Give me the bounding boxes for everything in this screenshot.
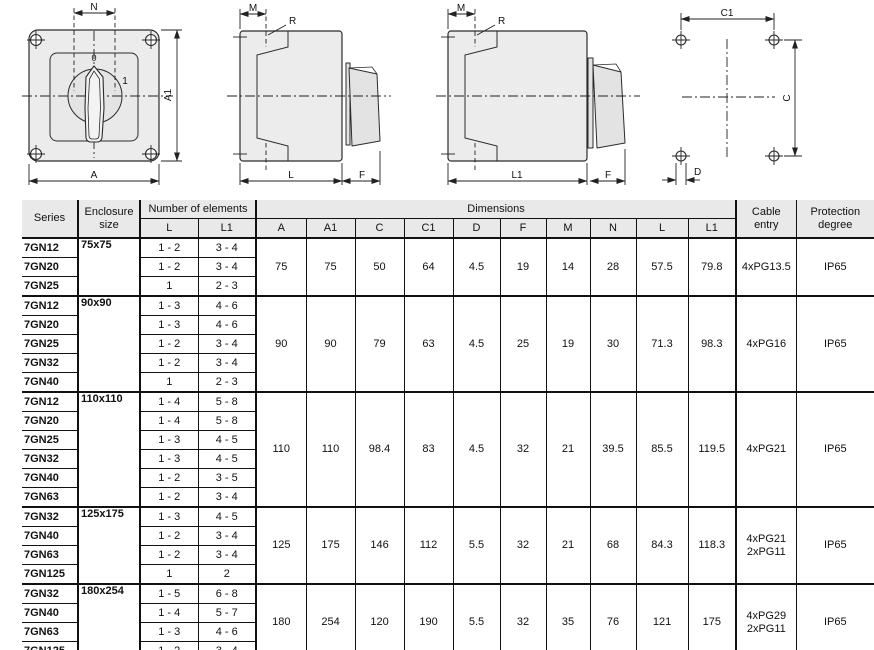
cable-entry-line: 4xPG16 <box>739 338 794 351</box>
elements-l1-cell: 3 - 4 <box>198 546 256 565</box>
protection-cell: IP65 <box>796 584 874 650</box>
series-cell: 7GN25 <box>22 335 78 354</box>
dim-label-c: C <box>782 94 793 101</box>
dimension-l1: L1 <box>448 163 587 185</box>
col-header-number-of-elements: Number of elements <box>140 200 256 219</box>
dim-value-cell: 25 <box>500 296 546 392</box>
col-header-enclosure-size: Enclosure size <box>78 200 140 238</box>
elements-l1-cell: 3 - 4 <box>198 488 256 508</box>
dim-value-cell: 146 <box>355 507 404 584</box>
dim-value-cell: 98.4 <box>355 392 404 507</box>
dim-value-cell: 30 <box>590 296 636 392</box>
table-row: 7GN12110x1101 - 45 - 811011098.4834.5322… <box>22 392 874 412</box>
dim-value-cell: 32 <box>500 507 546 584</box>
col-header-dimensions: Dimensions <box>256 200 736 219</box>
cable-entry-cell: 4xPG21 <box>736 392 796 507</box>
col-header-protection-degree: Protection degree <box>796 200 874 238</box>
dimension-a1: A1 <box>161 30 182 161</box>
elements-l-cell: 1 - 3 <box>140 450 198 469</box>
datasheet-page: N A1 A 0 1 <box>0 0 874 650</box>
series-cell: 7GN25 <box>22 277 78 297</box>
dim-value-cell: 254 <box>306 584 355 650</box>
dim-label-d: D <box>694 167 701 178</box>
dim-value-cell: 4.5 <box>453 296 500 392</box>
subheader-elements-l: L <box>140 219 198 239</box>
dim-value-cell: 84.3 <box>636 507 688 584</box>
dimension-a: A <box>29 164 159 185</box>
enclosure-size-cell: 75x75 <box>78 238 140 296</box>
series-cell: 7GN32 <box>22 507 78 527</box>
elements-l-cell: 1 - 3 <box>140 296 198 316</box>
elements-l-cell: 1 - 2 <box>140 546 198 565</box>
cable-entry-line: 4xPG29 <box>739 610 794 623</box>
elements-l-cell: 1 - 4 <box>140 604 198 623</box>
cable-entry-cell: 4xPG212xPG11 <box>736 507 796 584</box>
series-cell: 7GN40 <box>22 527 78 546</box>
dim-value-cell: 98.3 <box>688 296 736 392</box>
elements-l1-cell: 3 - 4 <box>198 354 256 373</box>
dim-value-cell: 21 <box>546 392 590 507</box>
subheader-dim-l: L <box>636 219 688 239</box>
dim-value-cell: 180 <box>256 584 306 650</box>
series-cell: 7GN63 <box>22 546 78 565</box>
table-row: 7GN32125x1751 - 34 - 51251751461125.5322… <box>22 507 874 527</box>
dim-value-cell: 35 <box>546 584 590 650</box>
subheader-dim-a1: A1 <box>306 219 355 239</box>
elements-l1-cell: 4 - 5 <box>198 431 256 450</box>
elements-l-cell: 1 - 2 <box>140 488 198 508</box>
series-cell: 7GN20 <box>22 412 78 431</box>
enclosure-size-cell: 125x175 <box>78 507 140 584</box>
dim-value-cell: 175 <box>688 584 736 650</box>
elements-l-cell: 1 <box>140 373 198 393</box>
dim-label-l: L <box>288 170 294 181</box>
header-row-1: Series Enclosure size Number of elements… <box>22 200 874 219</box>
dim-value-cell: 57.5 <box>636 238 688 296</box>
dim-value-cell: 64 <box>404 238 453 296</box>
dim-value-cell: 19 <box>500 238 546 296</box>
elements-l-cell: 1 - 2 <box>140 354 198 373</box>
drilling-plan-drawing: C1 C D <box>655 3 874 195</box>
series-cell: 7GN63 <box>22 623 78 642</box>
knob-side <box>346 63 380 146</box>
elements-l-cell: 1 - 5 <box>140 584 198 604</box>
dim-value-cell: 110 <box>256 392 306 507</box>
cable-entry-cell: 4xPG292xPG11 <box>736 584 796 650</box>
front-view-drawing: N A1 A 0 1 <box>15 3 220 195</box>
mounting-holes <box>672 31 783 165</box>
cable-entry-cell: 4xPG16 <box>736 296 796 392</box>
dim-value-cell: 50 <box>355 238 404 296</box>
centerlines <box>682 39 775 157</box>
elements-l1-cell: 4 - 5 <box>198 507 256 527</box>
cable-entry-line: 4xPG21 <box>739 443 794 456</box>
dim-value-cell: 5.5 <box>453 584 500 650</box>
elements-l1-cell: 2 - 3 <box>198 373 256 393</box>
dimension-f: F <box>590 149 625 185</box>
dimension-l: L <box>240 163 342 185</box>
elements-l-cell: 1 - 4 <box>140 392 198 412</box>
dim-value-cell: 76 <box>590 584 636 650</box>
rotary-knob <box>85 66 104 142</box>
dimension-f: F <box>342 151 380 185</box>
dim-value-cell: 90 <box>256 296 306 392</box>
elements-l1-cell: 3 - 4 <box>198 642 256 650</box>
dim-value-cell: 75 <box>256 238 306 296</box>
table-row: 7GN1290x901 - 34 - 6909079634.525193071.… <box>22 296 874 316</box>
subheader-elements-l1: L1 <box>198 219 256 239</box>
cable-entry-line: 2xPG11 <box>739 623 794 636</box>
dim-value-cell: 68 <box>590 507 636 584</box>
dim-value-cell: 125 <box>256 507 306 584</box>
dim-label-r: R <box>289 16 296 27</box>
subheader-dim-d: D <box>453 219 500 239</box>
table-row: 7GN32180x2541 - 56 - 81802541201905.5323… <box>22 584 874 604</box>
dim-value-cell: 19 <box>546 296 590 392</box>
series-cell: 7GN125 <box>22 565 78 585</box>
table-row: 7GN1275x751 - 23 - 4757550644.519142857.… <box>22 238 874 258</box>
subheader-dim-c: C <box>355 219 404 239</box>
subheader-dim-n: N <box>590 219 636 239</box>
series-cell: 7GN32 <box>22 354 78 373</box>
elements-l1-cell: 4 - 6 <box>198 316 256 335</box>
elements-l-cell: 1 - 4 <box>140 412 198 431</box>
dim-label-a: A <box>91 170 98 181</box>
series-cell: 7GN12 <box>22 296 78 316</box>
elements-l-cell: 1 - 3 <box>140 623 198 642</box>
elements-l-cell: 1 - 3 <box>140 507 198 527</box>
cable-entry-line: 2xPG11 <box>739 546 794 559</box>
series-cell: 7GN40 <box>22 373 78 393</box>
dim-value-cell: 4.5 <box>453 392 500 507</box>
series-cell: 7GN40 <box>22 469 78 488</box>
elements-l-cell: 1 - 2 <box>140 238 198 258</box>
dimension-n: N <box>74 2 115 13</box>
dim-label-m: M <box>249 3 257 14</box>
col-header-series: Series <box>22 200 78 238</box>
dim-value-cell: 85.5 <box>636 392 688 507</box>
dim-value-cell: 119.5 <box>688 392 736 507</box>
side-view-l1-drawing: M R L1 F <box>435 3 645 195</box>
dim-label-n: N <box>90 2 97 13</box>
dimensions-table: Series Enclosure size Number of elements… <box>22 200 874 650</box>
dim-value-cell: 120 <box>355 584 404 650</box>
dim-label-l1: L1 <box>511 170 523 181</box>
dim-value-cell: 110 <box>306 392 355 507</box>
protection-cell: IP65 <box>796 507 874 584</box>
series-cell: 7GN40 <box>22 604 78 623</box>
dim-value-cell: 21 <box>546 507 590 584</box>
col-header-cable-entry: Cable entry <box>736 200 796 238</box>
dim-value-cell: 90 <box>306 296 355 392</box>
elements-l1-cell: 3 - 5 <box>198 469 256 488</box>
dim-label-r: R <box>498 16 505 27</box>
dim-value-cell: 175 <box>306 507 355 584</box>
subheader-dim-m: M <box>546 219 590 239</box>
series-cell: 7GN12 <box>22 392 78 412</box>
enclosure-size-cell: 110x110 <box>78 392 140 507</box>
elements-l1-cell: 5 - 7 <box>198 604 256 623</box>
protection-cell: IP65 <box>796 392 874 507</box>
elements-l1-cell: 6 - 8 <box>198 584 256 604</box>
series-cell: 7GN63 <box>22 488 78 508</box>
dim-value-cell: 5.5 <box>453 507 500 584</box>
series-cell: 7GN32 <box>22 450 78 469</box>
dimension-d: D <box>662 163 701 185</box>
knob-side <box>588 58 625 148</box>
elements-l-cell: 1 <box>140 277 198 297</box>
dimension-m: M <box>240 3 266 29</box>
dim-value-cell: 79 <box>355 296 404 392</box>
elements-l1-cell: 5 - 8 <box>198 412 256 431</box>
dim-value-cell: 63 <box>404 296 453 392</box>
elements-l1-cell: 3 - 4 <box>198 527 256 546</box>
subheader-dim-c1: C1 <box>404 219 453 239</box>
series-cell: 7GN20 <box>22 316 78 335</box>
dim-value-cell: 39.5 <box>590 392 636 507</box>
dim-label-a1: A1 <box>163 88 174 101</box>
subheader-dim-f: F <box>500 219 546 239</box>
elements-l1-cell: 4 - 6 <box>198 296 256 316</box>
cable-entry-cell: 4xPG13.5 <box>736 238 796 296</box>
dimension-m: M <box>448 3 475 29</box>
series-cell: 7GN20 <box>22 258 78 277</box>
elements-l-cell: 1 - 3 <box>140 316 198 335</box>
dim-value-cell: 75 <box>306 238 355 296</box>
dim-label-f: F <box>605 170 611 181</box>
elements-l1-cell: 2 - 3 <box>198 277 256 297</box>
elements-l1-cell: 2 <box>198 565 256 585</box>
series-cell: 7GN125 <box>22 642 78 650</box>
dimension-c1: C1 <box>681 8 774 30</box>
subheader-dim-l1: L1 <box>688 219 736 239</box>
switch-position-0: 0 <box>91 53 96 63</box>
dim-label-m: M <box>457 3 465 14</box>
cable-entry-line: 4xPG13.5 <box>739 261 794 274</box>
protection-cell: IP65 <box>796 238 874 296</box>
elements-l-cell: 1 - 2 <box>140 642 198 650</box>
dim-label-c1: C1 <box>721 8 734 19</box>
protection-cell: IP65 <box>796 296 874 392</box>
dim-value-cell: 71.3 <box>636 296 688 392</box>
dim-value-cell: 118.3 <box>688 507 736 584</box>
dim-value-cell: 79.8 <box>688 238 736 296</box>
dimension-c: C <box>782 40 802 156</box>
dim-value-cell: 121 <box>636 584 688 650</box>
elements-l-cell: 1 - 2 <box>140 527 198 546</box>
dim-value-cell: 4.5 <box>453 238 500 296</box>
series-cell: 7GN25 <box>22 431 78 450</box>
elements-l1-cell: 3 - 4 <box>198 335 256 354</box>
elements-l1-cell: 4 - 6 <box>198 623 256 642</box>
cable-entry-line: 4xPG21 <box>739 533 794 546</box>
dim-value-cell: 32 <box>500 392 546 507</box>
subheader-dim-a: A <box>256 219 306 239</box>
elements-l1-cell: 5 - 8 <box>198 392 256 412</box>
dim-value-cell: 32 <box>500 584 546 650</box>
dim-value-cell: 14 <box>546 238 590 296</box>
elements-l1-cell: 4 - 5 <box>198 450 256 469</box>
elements-l-cell: 1 - 2 <box>140 258 198 277</box>
dim-value-cell: 190 <box>404 584 453 650</box>
enclosure-size-cell: 180x254 <box>78 584 140 650</box>
elements-l-cell: 1 - 3 <box>140 431 198 450</box>
elements-l1-cell: 3 - 4 <box>198 238 256 258</box>
elements-l-cell: 1 - 2 <box>140 469 198 488</box>
elements-l-cell: 1 - 2 <box>140 335 198 354</box>
enclosure-size-cell: 90x90 <box>78 296 140 392</box>
dim-value-cell: 28 <box>590 238 636 296</box>
dim-label-f: F <box>359 170 365 181</box>
dim-value-cell: 83 <box>404 392 453 507</box>
series-cell: 7GN12 <box>22 238 78 258</box>
elements-l1-cell: 3 - 4 <box>198 258 256 277</box>
elements-l-cell: 1 <box>140 565 198 585</box>
side-view-l-drawing: M R L F <box>225 3 395 195</box>
switch-position-1: 1 <box>122 76 128 87</box>
dim-value-cell: 112 <box>404 507 453 584</box>
series-cell: 7GN32 <box>22 584 78 604</box>
